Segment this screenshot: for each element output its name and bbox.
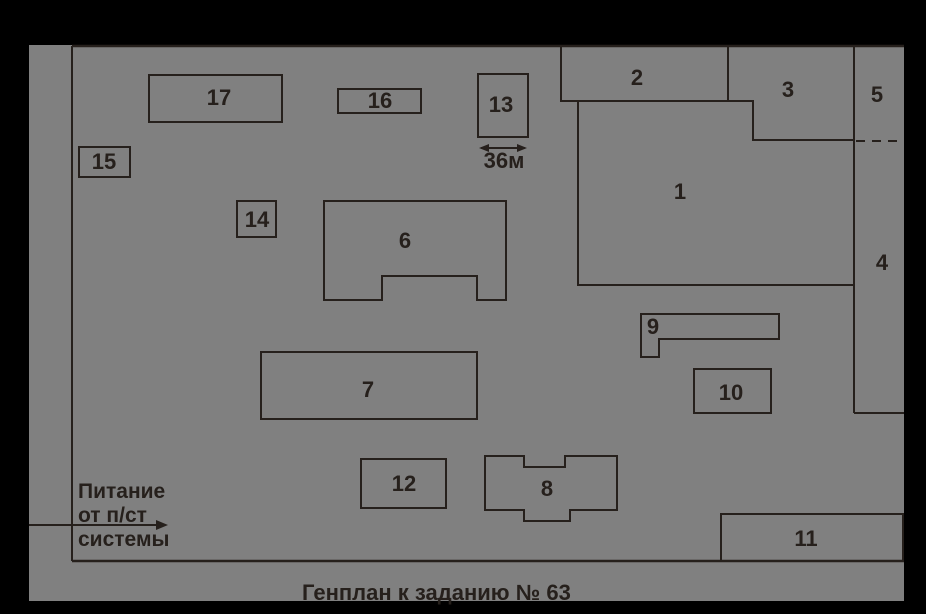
building-9-label: 9	[647, 316, 659, 338]
building-15-label: 15	[92, 151, 116, 173]
zone-4-label: 4	[876, 252, 888, 274]
building-1-label: 1	[674, 181, 686, 203]
building-8-label: 8	[541, 478, 553, 500]
building-10-label: 10	[719, 382, 743, 404]
building-3-label: 3	[782, 79, 794, 101]
building-12-label: 12	[392, 473, 416, 495]
building-2-outline	[561, 46, 728, 101]
building-14-label: 14	[245, 209, 269, 231]
building-11-label: 11	[794, 528, 817, 550]
building-1-outline	[578, 101, 854, 285]
building-6-label: 6	[399, 230, 411, 252]
dimension-label: 36м	[484, 150, 525, 172]
power-feed-label-line3: системы	[78, 528, 169, 552]
plan-caption: Генплан к заданию № 63	[302, 582, 571, 604]
power-feed-label: Питание от п/ст системы	[78, 480, 169, 552]
building-2-label: 2	[631, 67, 643, 89]
building-7-label: 7	[362, 379, 374, 401]
building-9-outline	[641, 314, 779, 357]
building-17-label: 17	[207, 87, 231, 109]
building-6-outline	[324, 201, 506, 300]
power-feed-label-line2: от п/ст	[78, 504, 169, 528]
building-13-label: 13	[489, 94, 513, 116]
power-feed-label-line1: Питание	[78, 480, 169, 504]
building-16-label: 16	[368, 90, 392, 112]
genplan-diagram: 1 2 3 4 5 6 7 8 9 10 11 12 13 14 15 16 1…	[0, 0, 926, 614]
zone-5-label: 5	[871, 84, 883, 106]
